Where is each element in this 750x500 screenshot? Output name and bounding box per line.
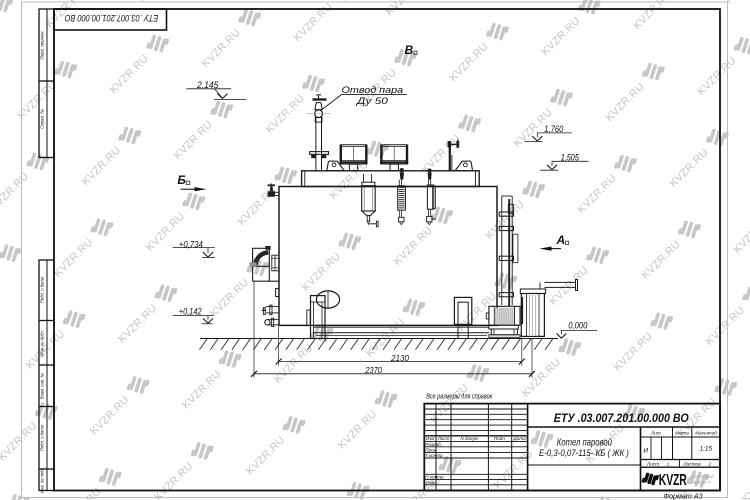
svg-text:KVZR.RU: KVZR.RU xyxy=(603,81,646,124)
svg-text:KVZR.RU: KVZR.RU xyxy=(695,55,738,98)
svg-text:Все размеры для справок: Все размеры для справок xyxy=(426,392,493,401)
svg-text:KVZR.RU: KVZR.RU xyxy=(548,264,591,307)
svg-text:KVZR.RU: KVZR.RU xyxy=(0,170,31,213)
svg-text:В: В xyxy=(404,43,413,57)
svg-text:KVZR.RU: KVZR.RU xyxy=(639,238,682,281)
svg-text:KVZR.RU: KVZR.RU xyxy=(447,41,490,84)
svg-text:KVZR.RU: KVZR.RU xyxy=(208,276,251,319)
svg-text:КОТЕЛЬНЫЙ: КОТЕЛЬНЫЙ xyxy=(689,474,714,479)
svg-text:1: 1 xyxy=(667,462,670,468)
svg-text:KVZR.RU: KVZR.RU xyxy=(300,250,343,293)
svg-text:KVZR.RU: KVZR.RU xyxy=(264,92,307,135)
svg-text:KVZR: KVZR xyxy=(659,471,687,489)
svg-text:KVZR.RU: KVZR.RU xyxy=(0,262,3,305)
svg-text:Дата: Дата xyxy=(513,436,527,441)
svg-text:ЗАВОД.РУ: ЗАВОД.РУ xyxy=(692,480,712,485)
svg-text:ЕТУ .03.007.201.00.000 ВО: ЕТУ .03.007.201.00.000 ВО xyxy=(554,411,689,425)
svg-text:KVZR.RU: KVZR.RU xyxy=(520,356,563,399)
svg-text:Котел паровой: Котел паровой xyxy=(557,437,613,448)
svg-text:Т.контр.: Т.контр. xyxy=(425,453,444,458)
svg-text:KVZR.RU: KVZR.RU xyxy=(88,394,131,437)
svg-text:KVZR.RU: KVZR.RU xyxy=(336,408,379,451)
svg-text:KVZR.RU: KVZR.RU xyxy=(116,302,159,345)
svg-text:Подп. и дата: Подп. и дата xyxy=(40,276,45,303)
svg-text:Подп. и дата: Подп. и дата xyxy=(40,424,45,451)
svg-text:KVZR.RU: KVZR.RU xyxy=(704,304,747,347)
svg-text:И: И xyxy=(643,448,648,455)
svg-text:Лист: Лист xyxy=(646,462,659,468)
svg-text:KVZR.RU: KVZR.RU xyxy=(667,146,710,189)
svg-text:Перв. примен.: Перв. примен. xyxy=(40,30,45,59)
svg-text:ЕТУ .03.007.201.00.000 ВО: ЕТУ .03.007.201.00.000 ВО xyxy=(65,13,159,23)
svg-text:Отвод пара: Отвод пара xyxy=(342,85,404,95)
svg-text:KVZR.RU: KVZR.RU xyxy=(484,198,527,241)
svg-text:0,000: 0,000 xyxy=(568,321,588,331)
svg-text:KVZR.RU: KVZR.RU xyxy=(575,172,618,215)
svg-text:Формат А3: Формат А3 xyxy=(663,491,702,500)
svg-text:KVZR.RU: KVZR.RU xyxy=(0,420,40,463)
svg-text:KVZR.RU: KVZR.RU xyxy=(631,0,674,32)
svg-text:Изм: Изм xyxy=(426,436,435,441)
svg-text:Н.контр.: Н.контр. xyxy=(425,475,444,480)
svg-text:KVZR.RU: KVZR.RU xyxy=(612,330,655,373)
svg-text:KVZR.RU: KVZR.RU xyxy=(16,78,59,121)
svg-text:KVZR.RU: KVZR.RU xyxy=(152,460,195,500)
svg-text:Е-0,3-0,07-115- КБ ( ЖК ): Е-0,3-0,07-115- КБ ( ЖК ) xyxy=(539,448,629,459)
svg-text:Масштаб: Масштаб xyxy=(695,430,717,435)
svg-text:2370: 2370 xyxy=(364,366,382,375)
svg-text:1:15: 1:15 xyxy=(699,446,712,453)
svg-text:Справ. №: Справ. № xyxy=(40,109,45,129)
svg-text:KVZR.RU: KVZR.RU xyxy=(172,118,215,161)
svg-text:KVZR.RU: KVZR.RU xyxy=(52,236,95,279)
svg-text:Утв.: Утв. xyxy=(425,480,435,485)
svg-text:Б: Б xyxy=(177,173,186,187)
svg-text:N докум.: N докум. xyxy=(460,436,479,441)
svg-text:KVZR.RU: KVZR.RU xyxy=(291,1,334,44)
svg-text:KVZR.RU: KVZR.RU xyxy=(539,15,582,58)
svg-text:KVZR.RU: KVZR.RU xyxy=(392,224,435,267)
svg-text:Инв. № подл.: Инв. № подл. xyxy=(40,467,45,493)
svg-text:Листов: Листов xyxy=(682,462,701,468)
svg-text:Лист: Лист xyxy=(437,436,450,441)
svg-text:KVZR.RU: KVZR.RU xyxy=(80,144,123,187)
svg-text:Подп.: Подп. xyxy=(494,436,506,441)
svg-text:2: 2 xyxy=(708,462,712,468)
svg-text:Ду 50: Ду 50 xyxy=(356,96,389,106)
svg-text:Взам. инв. №: Взам. инв. № xyxy=(40,373,45,399)
svg-text:2130: 2130 xyxy=(390,354,410,363)
svg-text:KVZR.RU: KVZR.RU xyxy=(200,27,243,70)
svg-text:Разраб.: Разраб. xyxy=(425,442,442,447)
svg-text:А: А xyxy=(555,233,565,247)
svg-text:KVZR.RU: KVZR.RU xyxy=(244,434,287,477)
svg-text:Масса: Масса xyxy=(675,430,689,435)
svg-text:Лит.: Лит. xyxy=(650,430,662,435)
svg-text:KVZR.RU: KVZR.RU xyxy=(180,368,223,411)
svg-text:Инв. № дубл.: Инв. № дубл. xyxy=(40,330,45,356)
svg-text:1,760: 1,760 xyxy=(544,123,564,134)
svg-text:KVZR.RU: KVZR.RU xyxy=(731,212,750,255)
svg-text:KVZR.RU: KVZR.RU xyxy=(108,53,151,96)
svg-text:Пров.: Пров. xyxy=(425,448,437,453)
svg-text:KVZR.RU: KVZR.RU xyxy=(740,462,750,500)
